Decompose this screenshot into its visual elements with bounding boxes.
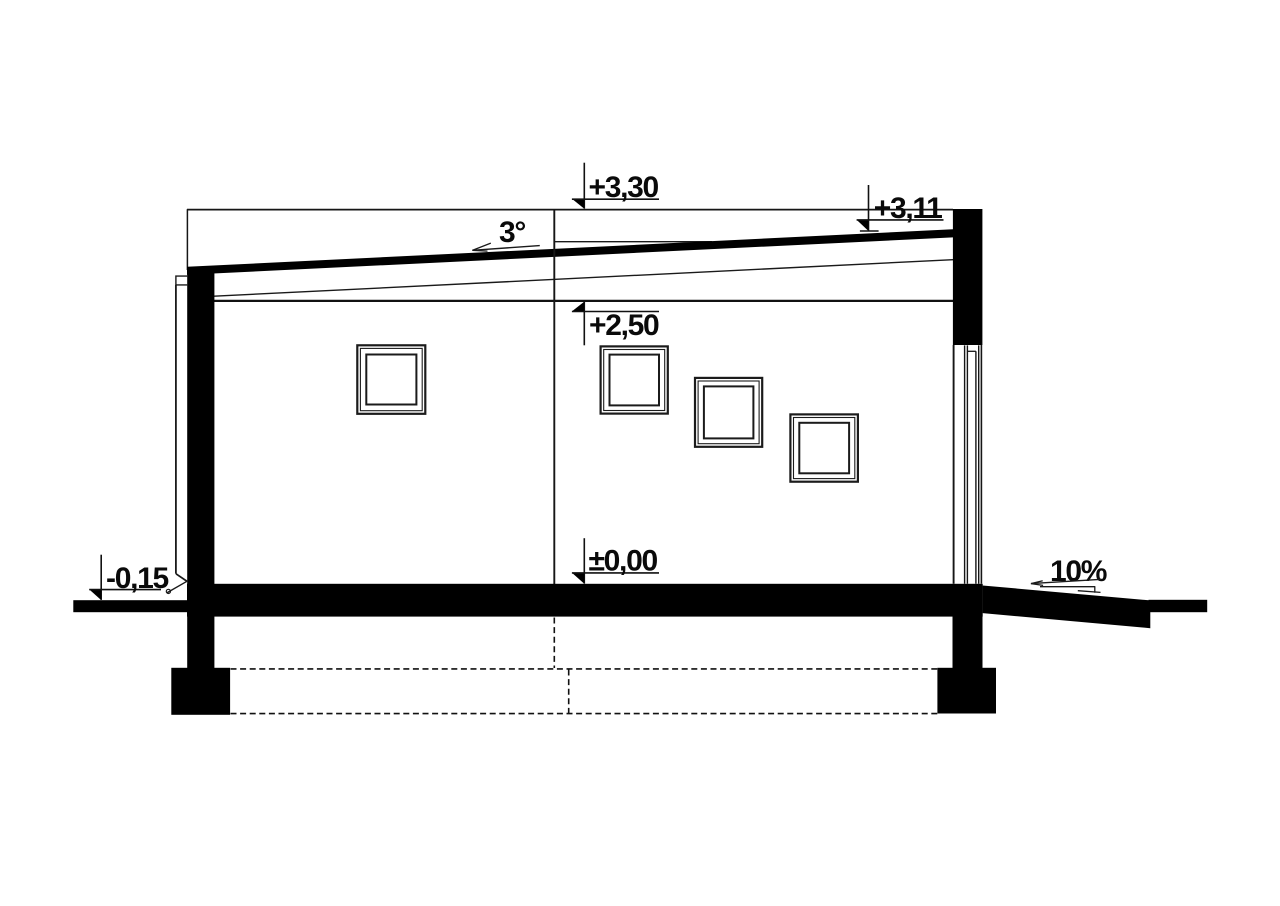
- svg-text:+2,50: +2,50: [589, 309, 659, 342]
- svg-text:+3,30: +3,30: [589, 171, 659, 204]
- svg-text:-0,15: -0,15: [106, 562, 168, 595]
- svg-text:3°: 3°: [499, 216, 525, 249]
- svg-text:±0,00: ±0,00: [589, 544, 658, 577]
- svg-text:10%: 10%: [1050, 555, 1107, 588]
- svg-text:+3,11: +3,11: [874, 192, 942, 225]
